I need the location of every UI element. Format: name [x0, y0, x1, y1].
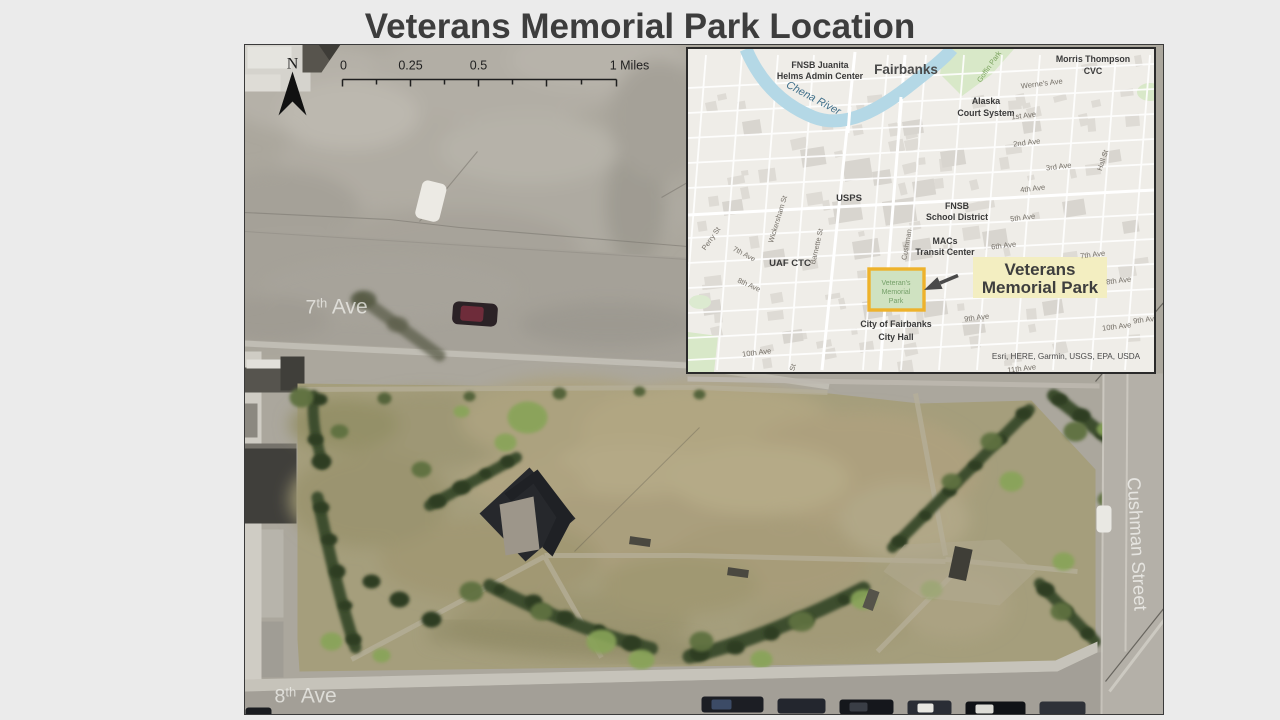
svg-text:School District: School District: [926, 212, 988, 222]
svg-text:Park: Park: [889, 298, 904, 305]
svg-text:City Hall: City Hall: [878, 332, 913, 342]
svg-text:Memorial: Memorial: [882, 289, 911, 296]
svg-text:1 Miles: 1 Miles: [610, 59, 650, 73]
svg-text:Transit Center: Transit Center: [915, 247, 975, 257]
svg-text:USPS: USPS: [836, 193, 862, 204]
svg-text:8th Ave: 8th Ave: [275, 685, 337, 708]
svg-text:Morris Thompson: Morris Thompson: [1056, 54, 1130, 64]
svg-text:CVC: CVC: [1084, 66, 1103, 76]
svg-text:0.25: 0.25: [398, 59, 422, 73]
svg-text:Veterans: Veterans: [1005, 260, 1076, 279]
svg-text:UAF CTC: UAF CTC: [769, 258, 811, 269]
svg-text:Esri, HERE, Garmin, USGS, EPA,: Esri, HERE, Garmin, USGS, EPA, USDA: [992, 352, 1141, 361]
svg-text:Memorial Park: Memorial Park: [982, 278, 1099, 297]
svg-text:City of Fairbanks: City of Fairbanks: [860, 319, 931, 329]
svg-text:7th Ave: 7th Ave: [306, 296, 368, 319]
svg-text:MACs: MACs: [933, 236, 958, 246]
svg-text:N: N: [287, 56, 299, 73]
svg-text:FNSB: FNSB: [945, 201, 969, 211]
svg-text:Alaska: Alaska: [972, 96, 1000, 106]
svg-text:Fairbanks: Fairbanks: [874, 62, 938, 77]
svg-text:FNSB Juanita: FNSB Juanita: [791, 60, 848, 70]
svg-text:0: 0: [340, 59, 347, 73]
svg-text:Court System: Court System: [957, 108, 1014, 118]
svg-text:0.5: 0.5: [470, 59, 487, 73]
svg-text:Veteran's: Veteran's: [882, 280, 911, 287]
